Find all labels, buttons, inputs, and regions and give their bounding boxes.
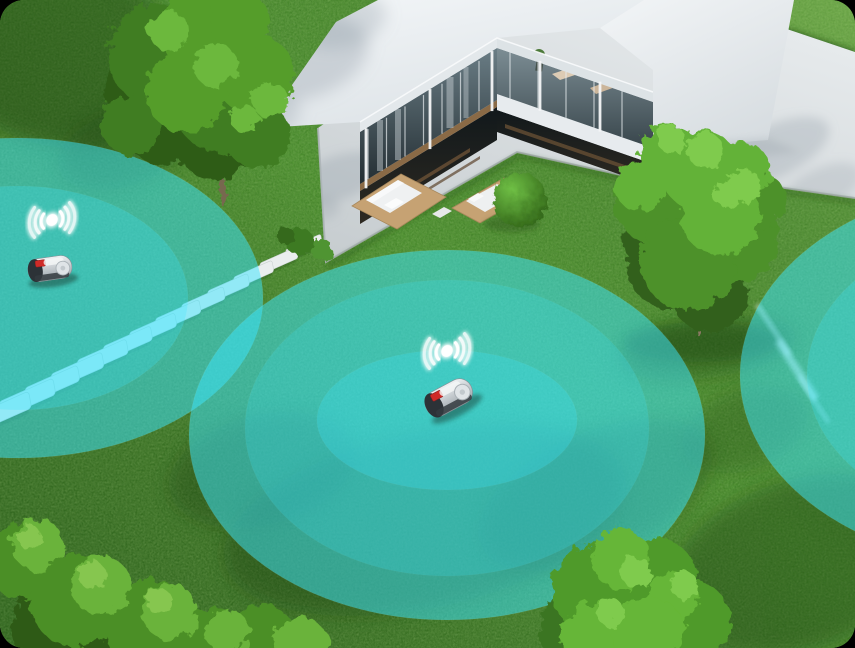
foliage — [713, 183, 737, 207]
foliage — [230, 104, 258, 132]
foliage — [670, 571, 698, 599]
foliage — [311, 239, 333, 261]
foliage — [596, 598, 624, 626]
garden-scene-image — [0, 0, 855, 648]
foliage — [78, 561, 106, 589]
foliage — [252, 82, 288, 118]
foliage — [193, 43, 237, 87]
terrace-bush — [493, 173, 547, 227]
foliage — [18, 526, 42, 550]
foliage — [658, 126, 686, 154]
facade-pillar — [491, 51, 494, 111]
foliage — [142, 584, 198, 640]
foliage — [620, 556, 652, 588]
facade-pillar — [429, 89, 432, 149]
foliage — [277, 227, 295, 245]
facade-pillar — [599, 82, 602, 132]
scene-canvas — [0, 0, 855, 648]
facade-pillar — [365, 128, 368, 188]
foliage — [614, 159, 666, 211]
foliage — [148, 10, 188, 50]
foliage — [687, 132, 723, 168]
foliage — [147, 589, 173, 615]
facade-pillar — [539, 61, 542, 111]
